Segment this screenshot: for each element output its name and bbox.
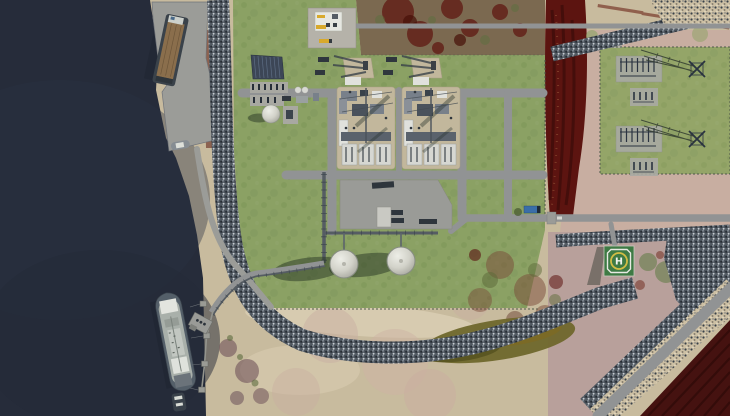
white-vehicle <box>557 217 562 220</box>
truck <box>315 70 325 75</box>
tug-boat <box>171 392 187 412</box>
aerial-lng-terminal-render: H <box>0 0 730 416</box>
air-coolers <box>342 144 391 165</box>
truck <box>318 57 329 62</box>
yellow-truck <box>316 25 326 29</box>
truck <box>419 219 437 224</box>
pink-patch <box>272 368 320 416</box>
small-skid <box>313 93 319 101</box>
switchgear-bushings <box>621 58 654 72</box>
helipad-h-label: H <box>615 257 623 268</box>
small-truck <box>282 96 291 101</box>
bush <box>514 208 522 216</box>
yellow-crane <box>317 15 325 18</box>
flare-aux-building <box>345 77 361 85</box>
small-tank <box>302 87 308 93</box>
process-train-2 <box>402 87 460 169</box>
tug-hull <box>171 392 187 412</box>
flare-derrick <box>363 61 368 70</box>
gate-house <box>547 212 556 224</box>
admin-equipment <box>332 14 338 19</box>
small-tank <box>295 87 301 93</box>
truck-loading-pad <box>340 180 452 229</box>
tank-vent <box>399 259 403 263</box>
loading-canopy <box>377 207 391 227</box>
small-skid <box>296 96 308 103</box>
dome-side-equipment <box>286 110 293 119</box>
admin-window <box>326 23 330 27</box>
admin-window <box>333 23 337 27</box>
condensate-dome-tank <box>262 105 280 123</box>
scene: H <box>0 0 730 416</box>
process-train-1 <box>337 87 395 169</box>
truck-cab <box>329 39 332 43</box>
tank-vent <box>342 262 346 266</box>
blue-truck-cab <box>537 206 541 213</box>
